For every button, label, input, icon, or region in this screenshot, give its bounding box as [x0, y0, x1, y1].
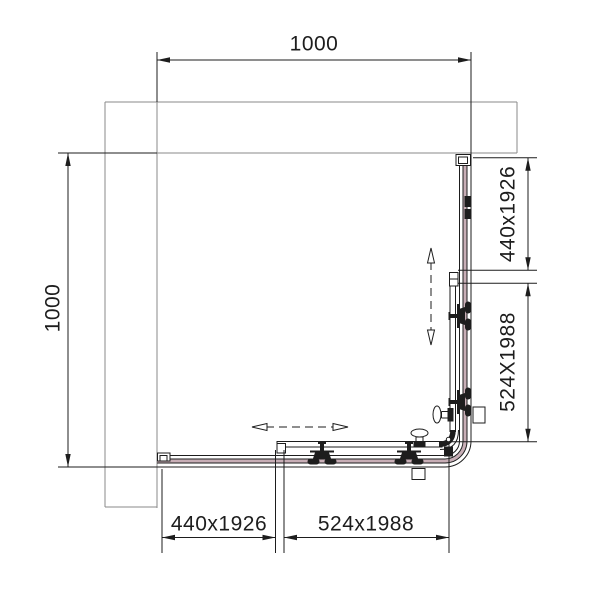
rail-outer-line [157, 52, 471, 467]
bottom-wall-bracket [158, 453, 171, 461]
rail-inner-line [157, 154, 460, 456]
arrowhead-up [428, 248, 435, 263]
wall-brackets [158, 155, 471, 462]
plan-view-linework [0, 0, 600, 600]
bottom-door-knob-icon [411, 429, 428, 437]
arrowhead-right [333, 424, 348, 431]
frame-rail [157, 52, 471, 467]
bottom-roller-cover [412, 469, 425, 480]
right-handle-mount [448, 408, 454, 422]
right-roller-cover [473, 407, 485, 423]
slide-direction-arrow-vertical [428, 248, 435, 345]
shower-enclosure-drawing: 1000 1000 440x1926 524X1988 440x1926 524… [0, 0, 600, 600]
right-panel-clamp-lower [465, 209, 471, 219]
dim-label-right-sliding-door: 524X1988 [498, 312, 519, 412]
dim-label-top-width: 1000 [290, 34, 339, 55]
right-door-handle [433, 406, 454, 423]
dim-label-left-depth: 1000 [43, 284, 64, 333]
right-sliding-door-panel [450, 274, 456, 432]
right-panel-clamp-upper [465, 196, 471, 207]
rail-line-2 [157, 154, 467, 463]
dim-label-bottom-fixed-panel: 440x1926 [171, 514, 267, 535]
dim-label-bottom-sliding-door: 524x1988 [318, 514, 414, 535]
slide-direction-arrow-horizontal [252, 424, 348, 431]
corner-elbow [439, 430, 453, 444]
bottom-handle-mount [414, 442, 426, 448]
dim-top-width [157, 52, 471, 102]
rail-line-3 [157, 154, 463, 459]
dim-label-right-fixed-panel: 440x1926 [498, 166, 519, 262]
arrowhead-down [428, 330, 435, 345]
bottom-door-handle [411, 429, 428, 448]
glass-seal-strip [157, 154, 465, 461]
corner-pivot-dot [446, 437, 450, 441]
dim-left-depth [58, 153, 157, 467]
arrowhead-left [252, 424, 267, 431]
right-door-knob-icon [433, 406, 441, 423]
